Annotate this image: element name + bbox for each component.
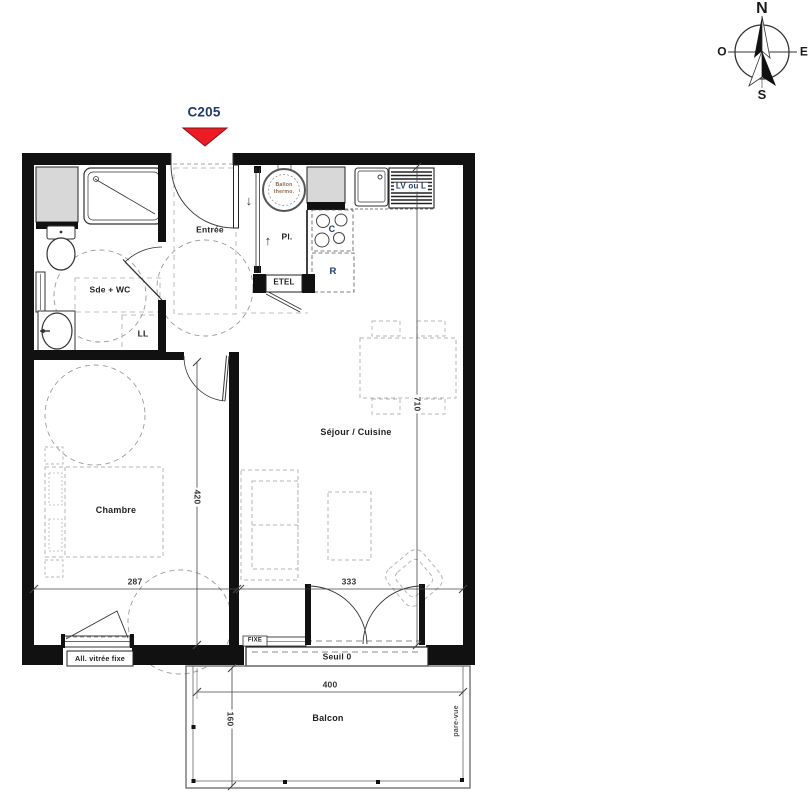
sofa [241, 470, 298, 580]
washing-machine-label: LL [138, 329, 149, 338]
cooktop-label: C [329, 225, 336, 235]
arrow-down-icon: ↓ [246, 194, 253, 208]
duct-shaft-kitchen [307, 167, 345, 274]
coffee-table [328, 492, 371, 560]
window-allege [61, 611, 134, 648]
french-doors [305, 584, 425, 645]
room-label-chambre: Chambre [96, 506, 136, 516]
dim-chambre-width: 287 [126, 577, 145, 586]
washbasin [38, 311, 75, 352]
floorplan-svg [0, 0, 810, 800]
compass-west-label: O [717, 45, 727, 58]
etel-door [266, 292, 302, 313]
closet-partition [254, 166, 261, 273]
shower [84, 168, 163, 224]
dim-sejour-width: 333 [340, 577, 359, 586]
fridge-label: R [329, 267, 336, 277]
room-label-sde-wc: Sde + WC [89, 285, 130, 294]
kitchen-sink [355, 168, 388, 206]
room-label-balcon: Balcon [312, 714, 343, 724]
fixed-pane-label: FIXE [248, 638, 262, 645]
dim-balcony-depth: 160 [225, 710, 234, 729]
room-label-entree: Entrée [196, 225, 224, 234]
threshold-label: Seuil 0 [323, 652, 352, 661]
dishwasher-label: LV ou L [394, 183, 428, 192]
room-label-placard: Pl. [282, 232, 293, 241]
entry-door [171, 165, 239, 228]
dimension-lines [30, 163, 467, 790]
room-label-etel: ETEL [273, 279, 294, 288]
compass-north-label: N [756, 0, 768, 18]
compass-rose [728, 16, 797, 88]
towel-radiator [36, 272, 45, 312]
dim-apartment-depth: 710 [412, 395, 421, 414]
entry-opening [171, 153, 233, 165]
compass-south-label: S [758, 88, 767, 102]
toilet [47, 226, 75, 270]
compass-east-label: E [800, 45, 808, 58]
floorplan: C205 N S O E Entrée Sde + WC Pl. ETEL Ch… [0, 0, 810, 800]
water-heater-label-line2: thermo. [274, 190, 294, 196]
dim-balcony-width: 400 [321, 680, 340, 689]
duct-shaft-bathroom [36, 167, 78, 229]
dining-table [360, 321, 456, 414]
chambre-door [184, 356, 229, 402]
armchair [382, 546, 447, 611]
dim-chambre-depth: 420 [192, 488, 201, 507]
entrance-arrow [183, 128, 227, 146]
privacy-screen-label: pare-vue [452, 705, 460, 737]
water-heater-label-line1: Ballon [275, 183, 292, 189]
room-label-sejour-cuisine: Séjour / Cuisine [320, 428, 391, 438]
turning-circles [45, 240, 253, 674]
arrow-up-icon: ↑ [265, 234, 272, 248]
fixed-glazing-label: All. vitrée fixe [75, 655, 125, 663]
unit-label: C205 [187, 106, 220, 121]
